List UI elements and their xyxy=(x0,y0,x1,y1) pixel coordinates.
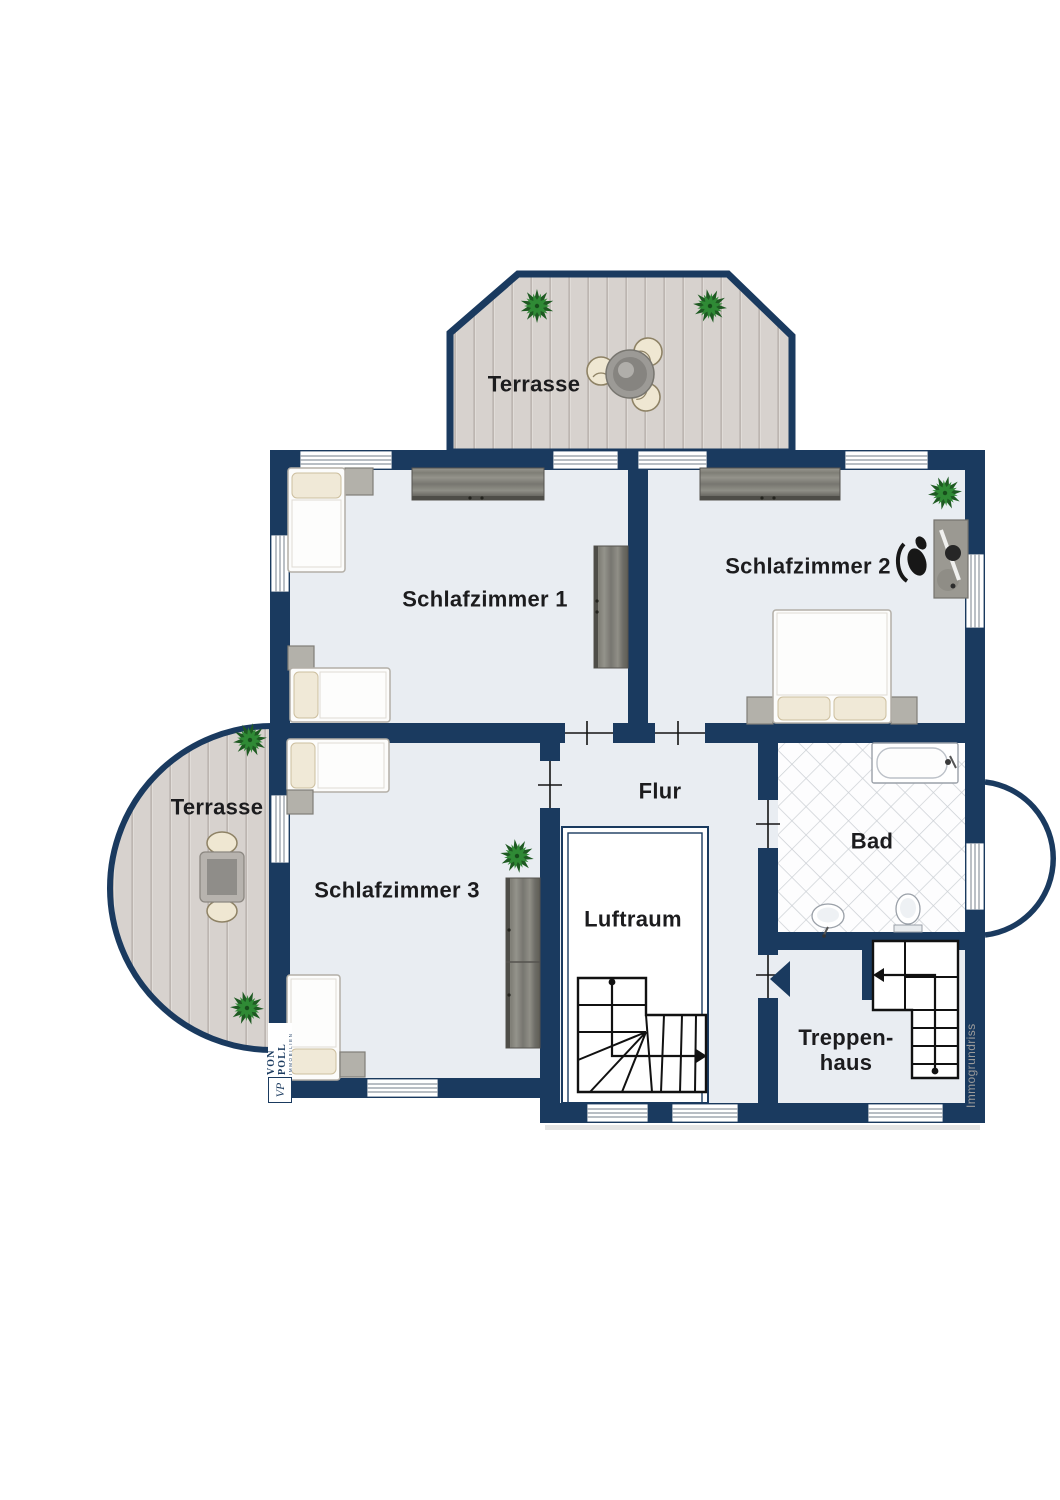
terrace-chair xyxy=(207,832,237,854)
single-bed xyxy=(287,739,389,792)
terrace-chair xyxy=(207,900,237,922)
floor-plan-canvas xyxy=(0,0,1060,1500)
terrace-left-table-set xyxy=(200,832,244,922)
label-staircase-line2: haus xyxy=(798,1050,893,1075)
desk xyxy=(934,520,968,598)
nightstand xyxy=(287,790,313,814)
label-bathroom: Bad xyxy=(851,829,893,854)
terrace-top xyxy=(450,274,792,452)
toilet xyxy=(894,894,922,932)
label-staircase-line1: Treppen- xyxy=(798,1025,893,1050)
brand-monogram: VP xyxy=(268,1077,292,1103)
wall xyxy=(540,743,560,761)
window xyxy=(868,1104,943,1122)
single-bed xyxy=(288,468,345,572)
label-bedroom2: Schlafzimmer 2 xyxy=(725,554,891,579)
window xyxy=(672,1104,738,1122)
double-bed xyxy=(773,610,891,723)
label-terrace-top: Terrasse xyxy=(488,372,581,397)
credit-text: Immogrundriss xyxy=(964,1016,978,1108)
wardrobe xyxy=(412,468,544,500)
brand-name: VON POLL xyxy=(266,1023,288,1075)
single-bed xyxy=(290,668,390,722)
wall xyxy=(628,470,648,723)
window xyxy=(966,843,984,910)
terrace-door xyxy=(271,795,289,863)
terrace-door xyxy=(553,451,618,469)
terrace-left xyxy=(110,716,274,1050)
wardrobe xyxy=(506,878,540,1048)
window xyxy=(271,535,289,592)
bathtub xyxy=(872,743,958,783)
wall xyxy=(758,848,778,955)
window xyxy=(300,451,392,469)
window xyxy=(587,1104,648,1122)
nightstand xyxy=(747,697,773,724)
window xyxy=(966,554,984,628)
terrace-door xyxy=(638,451,707,469)
building-shadow xyxy=(545,1125,980,1130)
label-air-space: Luftraum xyxy=(584,907,682,932)
wardrobe xyxy=(700,468,840,500)
wall xyxy=(758,743,778,800)
wall xyxy=(540,808,560,1123)
wall xyxy=(758,998,778,1103)
window xyxy=(367,1079,438,1097)
brand-subtitle: IMMOBILIEN xyxy=(288,1023,294,1075)
wall xyxy=(613,723,655,743)
window xyxy=(845,451,928,469)
nightstand xyxy=(345,468,373,495)
brand-text: VON POLL IMMOBILIEN xyxy=(268,1023,292,1075)
nightstand xyxy=(288,646,314,670)
label-hallway: Flur xyxy=(639,779,682,804)
label-bedroom1: Schlafzimmer 1 xyxy=(402,587,568,612)
bay-window-arc xyxy=(985,782,1053,935)
single-bed xyxy=(287,975,340,1080)
label-staircase: Treppen- haus xyxy=(798,1025,893,1075)
wardrobe xyxy=(594,546,628,668)
wall xyxy=(705,723,985,743)
terrace-table-inner xyxy=(207,859,237,895)
floor-plan: Terrasse Schlafzimmer 1 Schlafzimmer 2 T… xyxy=(0,0,1060,1500)
nightstand xyxy=(891,697,917,724)
terrace-table-highlight xyxy=(618,362,634,378)
brand-logo: VP VON POLL IMMOBILIEN xyxy=(268,1023,292,1103)
nightstand xyxy=(340,1052,365,1077)
label-terrace-left: Terrasse xyxy=(171,795,264,820)
label-bedroom3: Schlafzimmer 3 xyxy=(314,878,480,903)
